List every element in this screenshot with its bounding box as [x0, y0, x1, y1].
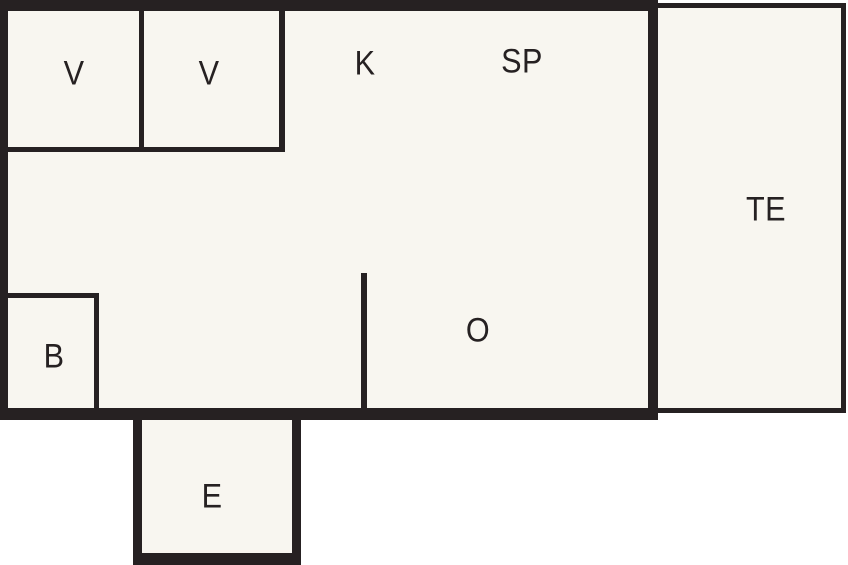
partition-wall: [361, 273, 367, 408]
room-label-te: TE: [746, 191, 786, 230]
outer-wall-top: [0, 0, 658, 11]
room-label-e: E: [202, 478, 223, 517]
room-label-b: B: [44, 338, 65, 377]
outer-wall-left: [0, 0, 8, 420]
room-label-o: O: [466, 312, 490, 351]
outer-wall-bottom: [0, 408, 658, 420]
room-label-k: K: [355, 45, 376, 84]
room-label-v1: V: [64, 55, 85, 94]
room-label-sp: SP: [501, 43, 543, 82]
outer-wall-right: [648, 0, 658, 420]
floor-plan: V V K SP TE B O E: [0, 0, 848, 565]
room-label-v2: V: [199, 55, 220, 94]
